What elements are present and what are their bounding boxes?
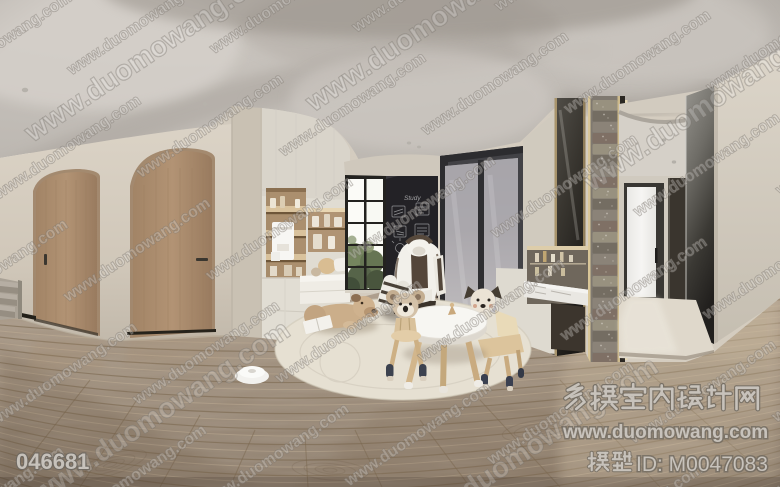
svg-text:www.duomowang.com: www.duomowang.com bbox=[562, 422, 768, 443]
svg-text:046681: 046681 bbox=[16, 449, 89, 474]
svg-text:ID: M0047083: ID: M0047083 bbox=[636, 453, 768, 476]
